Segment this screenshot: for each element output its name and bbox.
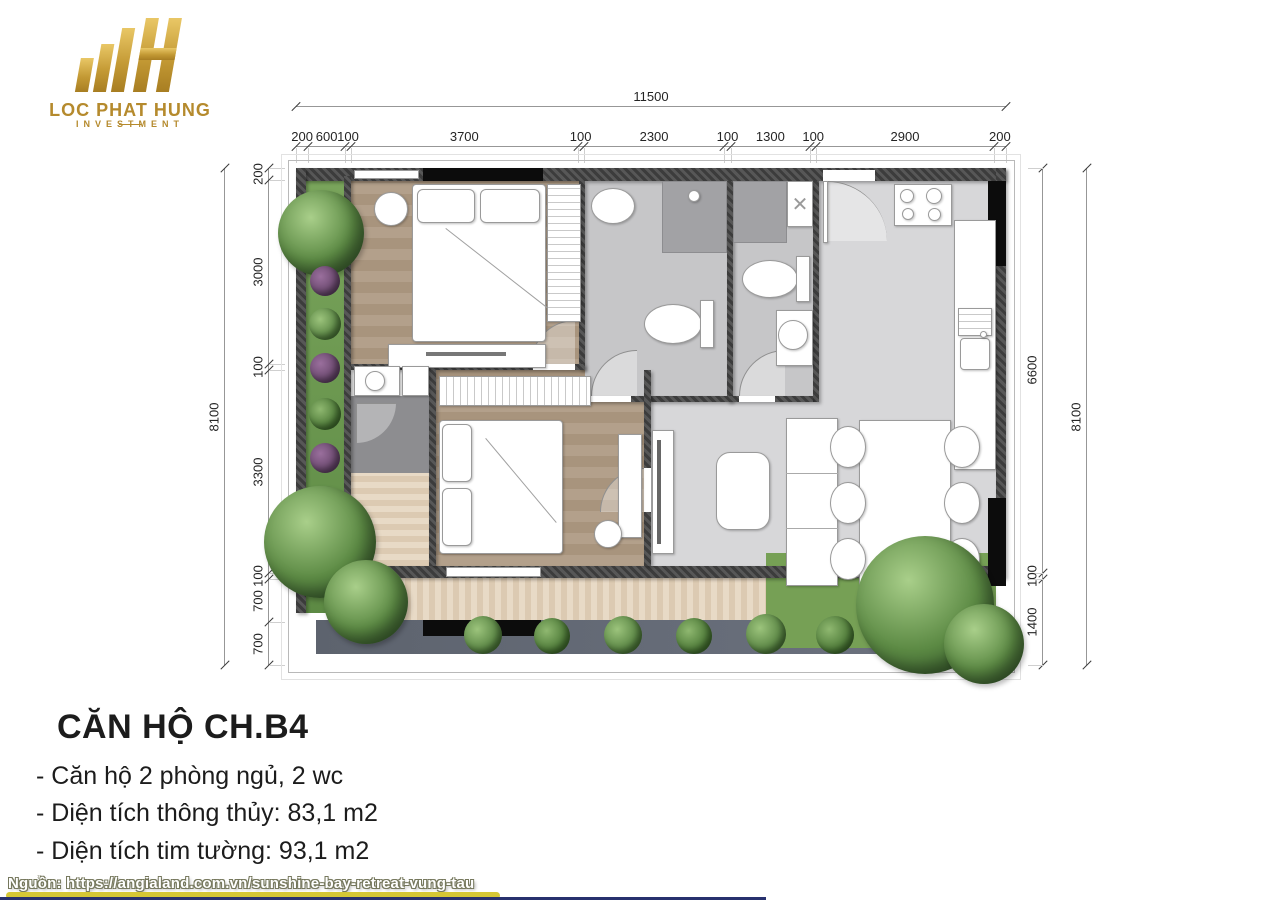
lintel-top bbox=[423, 168, 543, 181]
bush-icon bbox=[604, 616, 642, 654]
dimension-tick bbox=[291, 102, 300, 111]
dimension-label: 600 bbox=[316, 129, 338, 144]
dimension-tick bbox=[220, 163, 229, 172]
tree-icon bbox=[944, 604, 1024, 684]
apartment-spec-gross-area: - Diện tích tim tường: 93,1 m2 bbox=[36, 837, 369, 866]
shaft-icon: ✕ bbox=[787, 181, 813, 227]
burner-icon bbox=[902, 208, 914, 220]
dim-line-top-total: 11500 bbox=[296, 106, 1006, 107]
balcony-slider-door-1 bbox=[446, 567, 541, 577]
dimension-label: 100 bbox=[251, 565, 266, 587]
bush-icon bbox=[534, 618, 570, 654]
window-top bbox=[354, 170, 419, 179]
dresser-icon bbox=[388, 344, 546, 368]
washer-drum-icon bbox=[365, 371, 385, 391]
sink-icon-bathroom1 bbox=[591, 188, 635, 224]
dimension-label: 200 bbox=[251, 163, 266, 185]
desk-icon-bedroom2 bbox=[618, 434, 642, 538]
bush-icon bbox=[464, 616, 502, 654]
logo-company-name: LOC PHAT HUNG bbox=[30, 100, 230, 121]
bush-icon bbox=[310, 353, 340, 383]
chair-icon bbox=[830, 482, 866, 524]
chair-icon bbox=[944, 482, 980, 524]
kitchen-sink-icon bbox=[960, 338, 990, 370]
pillow-icon bbox=[417, 189, 475, 223]
burner-icon bbox=[900, 189, 914, 203]
bush-icon bbox=[310, 443, 340, 473]
entry-door-leaf bbox=[823, 181, 828, 243]
wall-bath-divider2 bbox=[813, 181, 819, 402]
dim-line-right-segments: 66001001400 bbox=[1042, 168, 1043, 665]
dimension-label: 2900 bbox=[891, 129, 920, 144]
dimension-label: 700 bbox=[251, 633, 266, 655]
dimension-label: 3300 bbox=[251, 457, 266, 486]
chair-icon bbox=[830, 538, 866, 580]
bathroom2-door-opening bbox=[739, 396, 775, 402]
apartment-floor-plan: ✕ bbox=[296, 168, 1006, 665]
dimension-label: 6600 bbox=[1025, 356, 1040, 385]
dimension-extension-line bbox=[1028, 579, 1043, 580]
sofa-cushion-line bbox=[786, 528, 838, 529]
wall-bedroom2-left bbox=[429, 370, 436, 566]
sink-icon-bathroom2 bbox=[778, 320, 808, 350]
company-logo: LOC PHAT HUNG INVESTMENT bbox=[30, 12, 230, 147]
tv-icon bbox=[426, 352, 506, 356]
sofa-cushion-line bbox=[786, 473, 838, 474]
pillow-icon bbox=[442, 488, 472, 546]
toilet-icon-bathroom2 bbox=[742, 260, 798, 298]
dimension-extension-line bbox=[1028, 665, 1043, 666]
bedroom2-door-opening bbox=[644, 468, 651, 512]
dimension-label: 1300 bbox=[756, 129, 785, 144]
dimension-label: 8100 bbox=[1069, 402, 1084, 431]
dimension-label: 2300 bbox=[640, 129, 669, 144]
floor-plan-page: LOC PHAT HUNG INVESTMENT 11500 200600100… bbox=[0, 0, 1266, 900]
dim-line-top-segments: 2006001003700100230010013001002900200 bbox=[296, 146, 1006, 147]
dimension-label: 100 bbox=[251, 357, 266, 379]
utility-counter-icon bbox=[402, 366, 429, 396]
wardrobe-icon-bedroom2 bbox=[439, 376, 591, 406]
burner-icon bbox=[926, 188, 942, 204]
dim-line-left-segments: 20030001003300100700700 bbox=[268, 168, 269, 665]
dimension-tick bbox=[1082, 163, 1091, 172]
tree-icon bbox=[324, 560, 408, 644]
dimension-extension-line bbox=[1028, 168, 1043, 169]
dimension-label: 100 bbox=[1025, 565, 1040, 587]
tree-icon bbox=[278, 190, 364, 276]
dimension-label: 11500 bbox=[633, 89, 668, 104]
faucet-icon bbox=[980, 331, 987, 338]
chair-icon bbox=[830, 426, 866, 468]
entry-opening bbox=[823, 170, 875, 181]
bush-icon bbox=[746, 614, 786, 654]
source-url-text: Nguồn: https://angialand.com.vn/sunshine… bbox=[8, 875, 474, 892]
wardrobe-icon-bedroom1 bbox=[547, 184, 581, 322]
dim-line-left-total: 8100 bbox=[224, 168, 225, 665]
shower-head-icon bbox=[688, 190, 700, 202]
dim-line-right-total: 8100 bbox=[1086, 168, 1087, 665]
pillow-icon bbox=[442, 424, 472, 482]
pillow-icon bbox=[480, 189, 540, 223]
bush-icon bbox=[816, 616, 854, 654]
shower-icon-bathroom2 bbox=[733, 181, 787, 243]
toilet-icon-bathroom1 bbox=[644, 304, 702, 344]
dimension-tick bbox=[220, 660, 229, 669]
dimension-label: 200 bbox=[989, 129, 1011, 144]
apartment-spec-net-area: - Diện tích thông thủy: 83,1 m2 bbox=[36, 799, 378, 828]
tv-icon-living bbox=[657, 440, 661, 544]
dimension-label: 700 bbox=[251, 590, 266, 612]
bathroom1-door-opening bbox=[591, 396, 631, 402]
dimension-label: 3700 bbox=[450, 129, 479, 144]
dimension-label: 1400 bbox=[1025, 608, 1040, 637]
stool-icon bbox=[594, 520, 622, 548]
toilet-tank-icon bbox=[796, 256, 810, 302]
chair-icon bbox=[944, 426, 980, 468]
bush-icon bbox=[310, 266, 340, 296]
dimension-tick bbox=[1001, 102, 1010, 111]
toilet-tank-icon bbox=[700, 300, 714, 348]
apartment-title: CĂN HỘ CH.B4 bbox=[57, 708, 309, 747]
burner-icon bbox=[928, 208, 941, 221]
dimension-label: 100 bbox=[802, 129, 824, 144]
column-bottom-right bbox=[988, 498, 1006, 586]
coffee-table-icon bbox=[716, 452, 770, 530]
bush-icon bbox=[676, 618, 712, 654]
drain-board-icon bbox=[958, 308, 992, 336]
nightstand-icon bbox=[374, 192, 408, 226]
dimension-label: 200 bbox=[291, 129, 313, 144]
dimension-label: 8100 bbox=[207, 402, 222, 431]
bush-icon bbox=[309, 398, 341, 430]
tv-cabinet-icon bbox=[652, 430, 674, 554]
apartment-spec-bedrooms: - Căn hộ 2 phòng ngủ, 2 wc bbox=[36, 762, 343, 791]
bush-icon bbox=[309, 308, 341, 340]
dimension-tick bbox=[1082, 660, 1091, 669]
dimension-label: 3000 bbox=[251, 258, 266, 287]
